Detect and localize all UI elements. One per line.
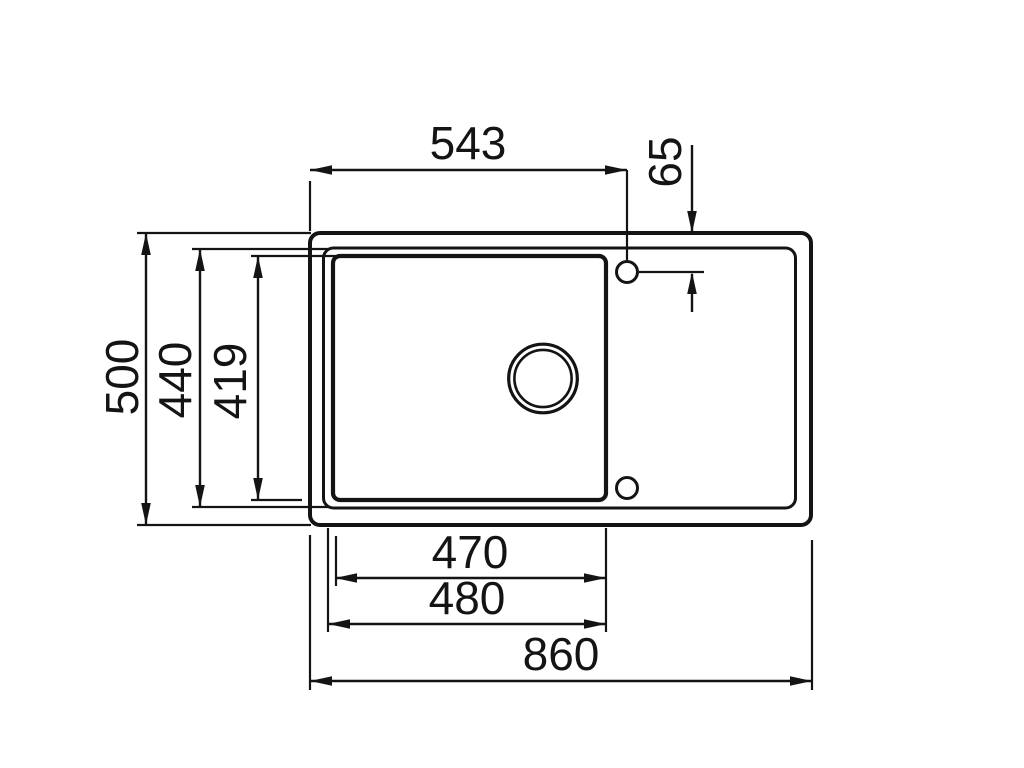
dim-label-480: 480 bbox=[429, 572, 506, 624]
dim-label-470: 470 bbox=[432, 526, 509, 578]
dim-label-860: 860 bbox=[523, 628, 600, 680]
dim-label-440: 440 bbox=[149, 342, 201, 419]
dim-label-419: 419 bbox=[204, 343, 256, 420]
dim-label-65: 65 bbox=[639, 136, 691, 187]
drawing-page: 543 65 500 440 bbox=[0, 0, 1024, 768]
dim-label-500: 500 bbox=[96, 339, 148, 416]
sink-technical-drawing: 543 65 500 440 bbox=[0, 0, 1024, 768]
dim-label-543: 543 bbox=[430, 117, 507, 169]
